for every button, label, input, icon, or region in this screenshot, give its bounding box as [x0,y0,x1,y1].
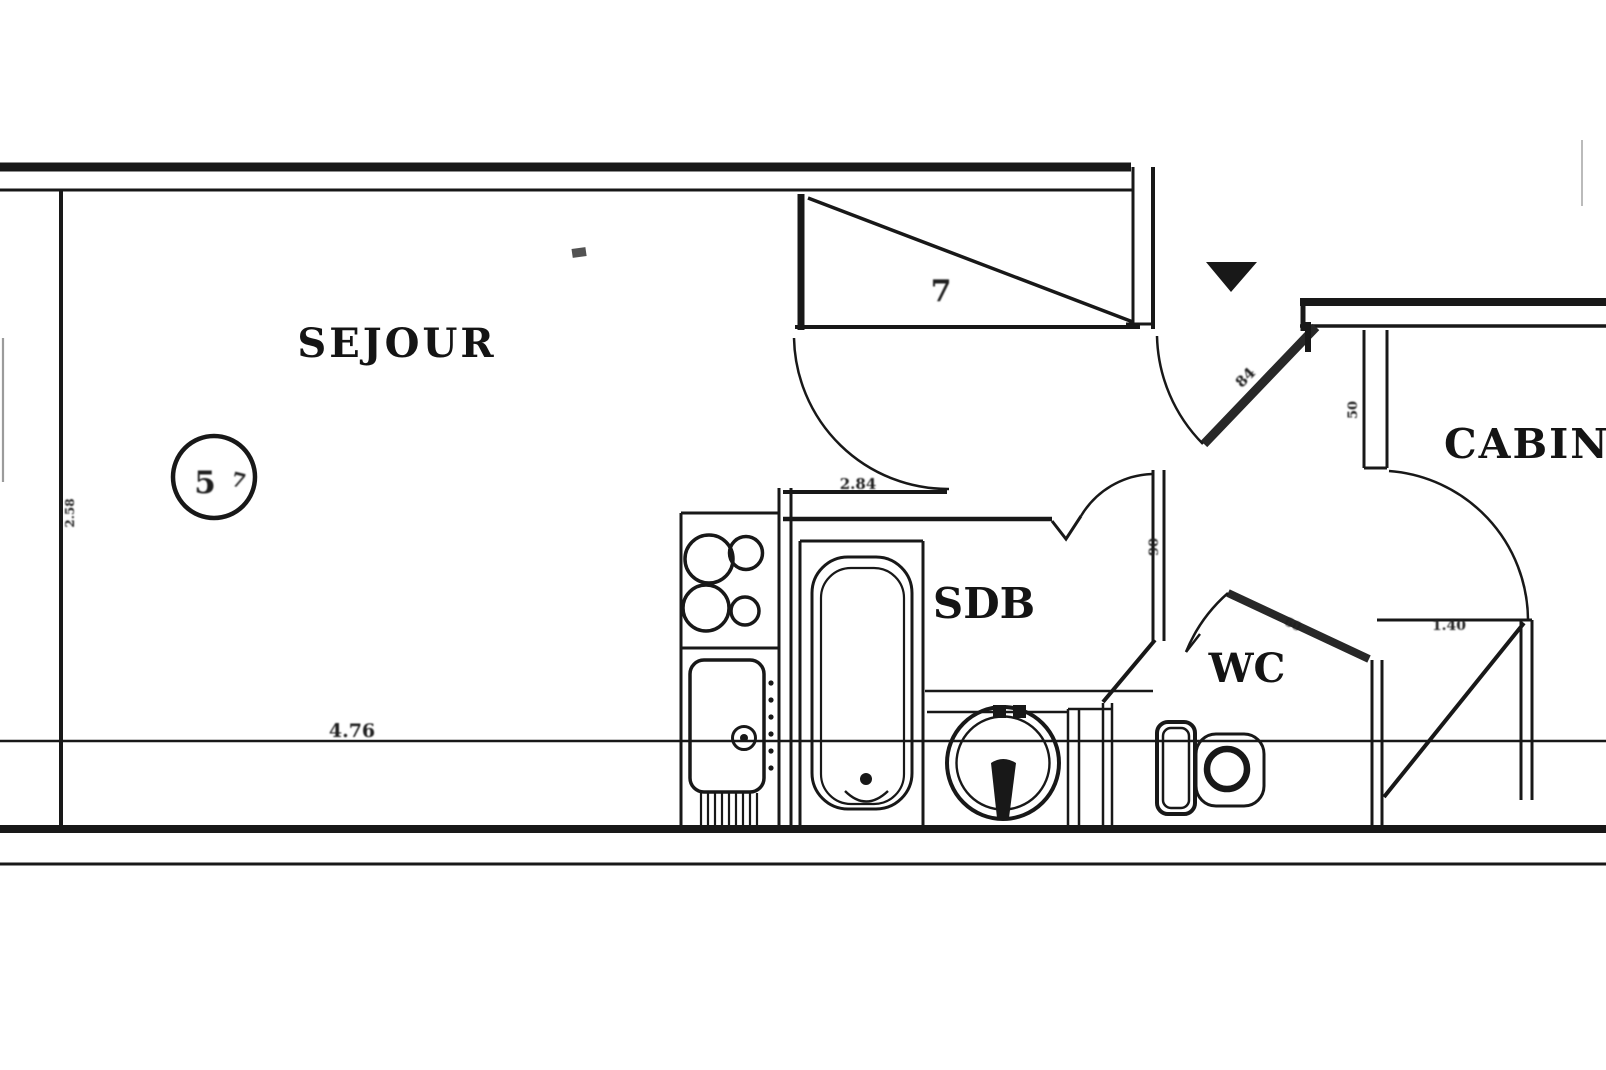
left-wall-dimension-text: 2.58 [63,498,77,527]
toilet [1157,722,1264,814]
room-wc: WC 60 [1157,593,1382,828]
entry-closet: 7 [795,194,1140,330]
plumbing-dots [768,680,773,770]
floor-plan-drawing: 7 84 SEJOUR 5 7 4.76 2.58 [0,0,1606,1070]
room-label-sdb: SDB [933,579,1035,628]
kitchen-sink [690,660,764,827]
floor-plan-page: 7 84 SEJOUR 5 7 4.76 2.58 [0,0,1606,1070]
sdb-angled-wall [1103,640,1155,702]
sink-basin [690,660,764,792]
toilet-bowl-ring [1207,749,1247,789]
kitchenette [681,488,791,829]
cabine-jamb-dimension-text: 50 [1346,401,1361,419]
cabine-closet: 1.40 [1377,618,1532,800]
room-sdb: SDB 2.84 90 [783,470,1164,831]
room-label-wc: WC [1208,645,1286,692]
circle-mark2-text: 7 [229,467,248,494]
bathtub [800,541,923,831]
sejour-dimension-text: 4.76 [329,720,375,742]
sink-drain-dot [740,734,748,742]
circle-mark-text: 5 [194,465,216,501]
basin-tap-block [1013,705,1026,718]
bathtub-inner [821,568,904,804]
sdb-door-swing-arc [1081,474,1152,516]
cabine-closet-dimension-text: 1.40 [1432,618,1466,634]
burner-icon [731,597,759,625]
sdb-dimension-text: 2.84 [840,475,877,493]
burner-icon [685,535,733,583]
sdb-right-wall: 90 [1068,470,1164,829]
bathtub-rim [812,557,912,809]
entry-door-leaf [1204,327,1316,444]
bathtub-drain-arc [845,791,888,802]
cabine-door-swing-arc [1389,471,1528,619]
closet-dimension-text: 7 [931,274,952,309]
bathtub-drain [860,773,872,785]
sdb-door-fold [1052,516,1081,539]
entrance: 84 [1157,262,1316,444]
burner-icon [730,537,763,570]
room-label-sejour: SEJOUR [297,320,496,367]
cabine-closet-diagonal [1384,623,1524,797]
basin-tap-icon [991,759,1016,821]
room-cabine: CABINE 50 1.40 [1346,330,1606,800]
closet-diagonal [808,198,1133,322]
entrance-arrow-icon [1206,262,1257,292]
burner-icon [683,585,729,631]
sink-hatch [701,793,757,827]
room-sejour: SEJOUR 5 7 4.76 2.58 [63,247,949,742]
room-label-cabine: CABINE [1444,420,1606,468]
sdb-right-wall-dimension-text: 90 [1147,538,1162,556]
washbasin [947,705,1059,821]
entry-door-swing-arc [1157,336,1203,444]
stove [683,535,763,631]
duct-niche [1068,703,1112,829]
basin-tap-block [993,705,1006,718]
scan-speck [572,247,587,258]
sejour-door-swing-arc [794,338,949,489]
